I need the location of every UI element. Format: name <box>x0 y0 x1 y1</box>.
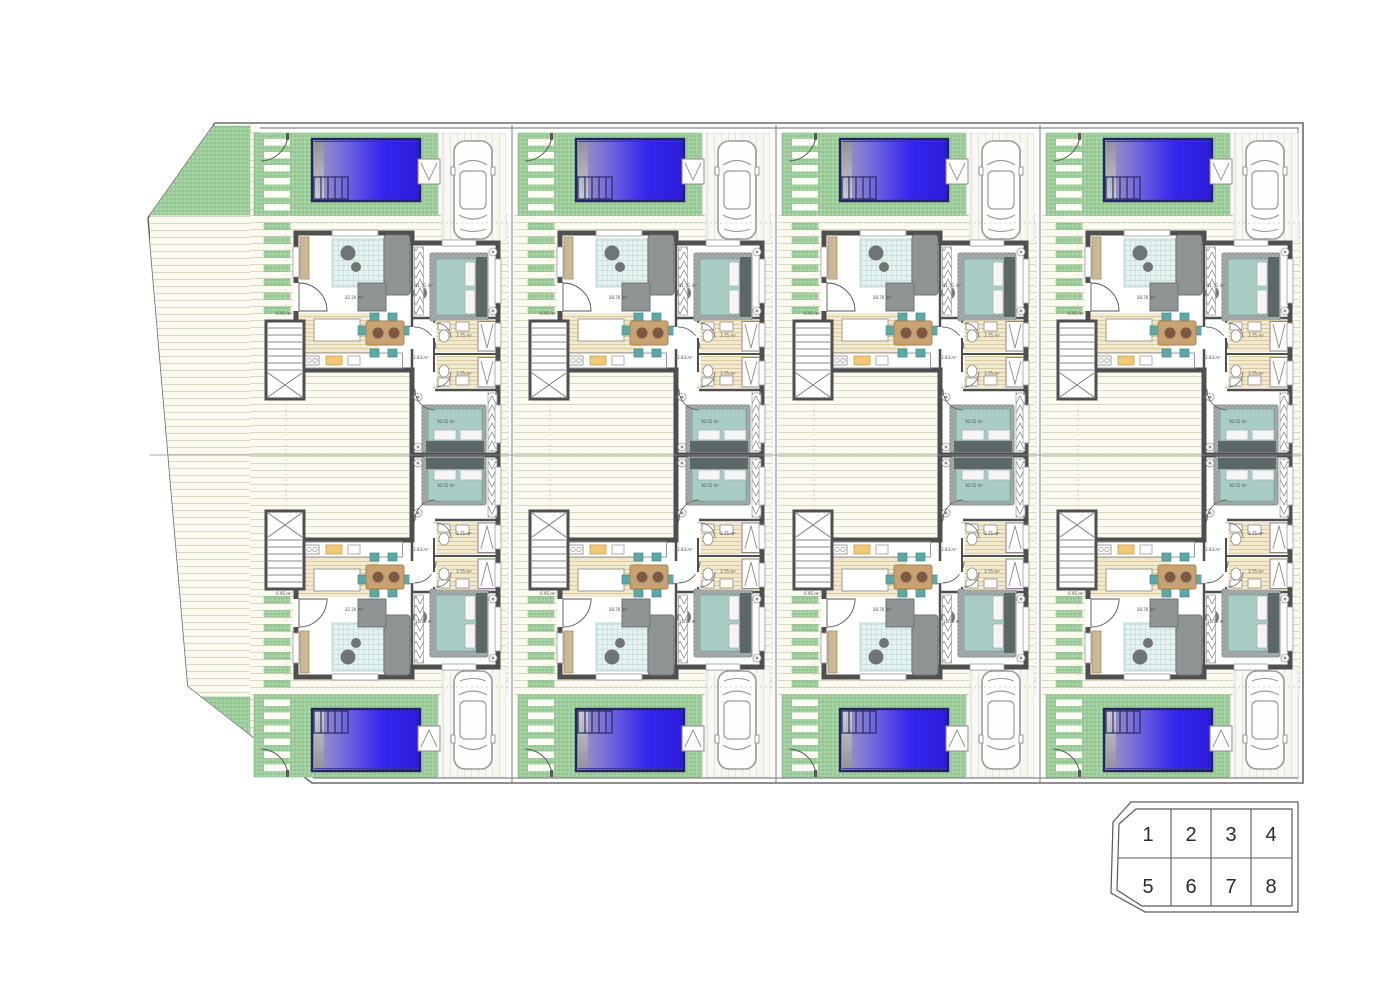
room-label-living-unit-2: 28.76 m² <box>609 295 628 300</box>
room-label-bedroom2-unit-5: 10.51 m² <box>437 483 456 488</box>
room-label-bedroom1-unit-8: 11.71 m² <box>1207 619 1226 624</box>
room-label-bedroom1-unit-2: 11.71 m² <box>679 283 698 288</box>
room-label-living-unit-1: 32.20 m² <box>345 295 364 300</box>
room-label-bath2-unit-2: 3.75 m² <box>720 371 736 376</box>
room-label-living-unit-3: 28.76 m² <box>873 295 892 300</box>
floor-plan-svg: 32.20 m²11.71 m²1.83 m²3.75 m²3.75 m²10.… <box>0 0 1400 989</box>
villa-unit-8 <box>1042 455 1300 777</box>
room-label-hall-unit-8: 1.83 m² <box>1205 547 1221 552</box>
room-label-bedroom1-unit-4: 11.71 m² <box>1207 283 1226 288</box>
room-label-bedroom2-unit-2: 10.51 m² <box>701 419 720 424</box>
room-label-living-unit-7: 28.76 m² <box>873 607 892 612</box>
key-plan-cell-3: 3 <box>1225 824 1236 846</box>
room-label-bath2-unit-8: 3.75 m² <box>1248 531 1264 536</box>
room-label-hall-unit-4: 1.83 m² <box>1205 355 1221 360</box>
room-label-bedroom2-unit-6: 10.51 m² <box>701 483 720 488</box>
room-label-bedroom2-unit-4: 10.51 m² <box>1229 419 1248 424</box>
villa-unit-7 <box>778 455 1036 777</box>
room-label-hall-unit-1: 1.83 m² <box>413 355 429 360</box>
villa-unit-6 <box>514 455 772 777</box>
key-plan-cell-2: 2 <box>1185 824 1196 846</box>
room-label-bedroom2-unit-7: 10.51 m² <box>965 483 984 488</box>
site-plan-canvas: 32.20 m²11.71 m²1.83 m²3.75 m²3.75 m²10.… <box>0 0 1400 989</box>
room-label-bath1-unit-4: 3.75 m² <box>1248 333 1264 338</box>
room-label-porch-unit-8: 6.95 m² <box>1068 591 1084 596</box>
room-label-living-unit-4: 28.76 m² <box>1137 295 1156 300</box>
room-label-bedroom1-unit-6: 11.71 m² <box>679 619 698 624</box>
room-label-bath1-unit-7: 3.75 m² <box>984 569 1000 574</box>
key-plan-cell-4: 4 <box>1265 824 1276 846</box>
room-label-bath1-unit-3: 3.75 m² <box>984 333 1000 338</box>
room-label-porch-unit-3: 6.95 m² <box>804 311 820 316</box>
room-label-living-unit-6: 28.76 m² <box>609 607 628 612</box>
room-label-porch-unit-7: 6.95 m² <box>804 591 820 596</box>
room-label-living-unit-8: 28.76 m² <box>1137 607 1156 612</box>
room-label-porch-unit-5: 6.95 m² <box>276 591 292 596</box>
room-label-bath2-unit-6: 3.75 m² <box>720 531 736 536</box>
room-label-bath1-unit-6: 3.75 m² <box>720 569 736 574</box>
key-plan-cell-6: 6 <box>1185 876 1196 898</box>
room-label-bath1-unit-5: 3.75 m² <box>456 569 472 574</box>
room-label-bedroom2-unit-8: 10.51 m² <box>1229 483 1248 488</box>
key-plan: 1 2 3 4 5 6 7 8 <box>1111 802 1298 912</box>
room-label-hall-unit-7: 1.83 m² <box>941 547 957 552</box>
villa-unit-5 <box>250 455 508 777</box>
villa-unit-4 <box>1042 133 1300 455</box>
room-label-bath2-unit-3: 3.75 m² <box>984 371 1000 376</box>
room-label-porch-unit-4: 6.95 m² <box>1068 311 1084 316</box>
room-label-porch-unit-6: 6.95 m² <box>540 591 556 596</box>
corner-plot-grounds <box>150 126 260 782</box>
room-label-bath1-unit-8: 3.75 m² <box>1248 569 1264 574</box>
room-label-bath1-unit-2: 3.75 m² <box>720 333 736 338</box>
key-plan-cell-1: 1 <box>1142 824 1153 846</box>
room-label-hall-unit-3: 1.83 m² <box>941 355 957 360</box>
room-label-hall-unit-2: 1.83 m² <box>677 355 693 360</box>
villa-unit-3 <box>778 133 1036 455</box>
room-label-bath1-unit-1: 3.75 m² <box>456 333 472 338</box>
room-label-bath2-unit-1: 3.75 m² <box>456 371 472 376</box>
key-plan-cell-8: 8 <box>1265 876 1276 898</box>
room-label-bedroom1-unit-3: 11.71 m² <box>943 283 962 288</box>
room-label-porch-unit-2: 6.95 m² <box>540 311 556 316</box>
key-plan-cell-7: 7 <box>1225 876 1236 898</box>
room-label-bedroom2-unit-3: 10.51 m² <box>965 419 984 424</box>
room-label-bedroom1-unit-7: 11.71 m² <box>943 619 962 624</box>
room-label-bedroom2-unit-1: 10.51 m² <box>437 419 456 424</box>
key-plan-cell-5: 5 <box>1142 876 1153 898</box>
room-label-bath2-unit-4: 3.75 m² <box>1248 371 1264 376</box>
room-label-hall-unit-5: 1.83 m² <box>413 547 429 552</box>
room-label-bath2-unit-7: 3.75 m² <box>984 531 1000 536</box>
room-label-bedroom1-unit-5: 11.71 m² <box>415 619 434 624</box>
room-label-hall-unit-6: 1.83 m² <box>677 547 693 552</box>
villa-unit-2 <box>514 133 772 455</box>
room-label-porch-unit-1: 6.95 m² <box>276 311 292 316</box>
villa-unit-1 <box>250 133 508 455</box>
room-label-bath2-unit-5: 3.75 m² <box>456 531 472 536</box>
room-label-bedroom1-unit-1: 11.71 m² <box>415 283 434 288</box>
room-label-living-unit-5: 32.20 m² <box>345 607 364 612</box>
